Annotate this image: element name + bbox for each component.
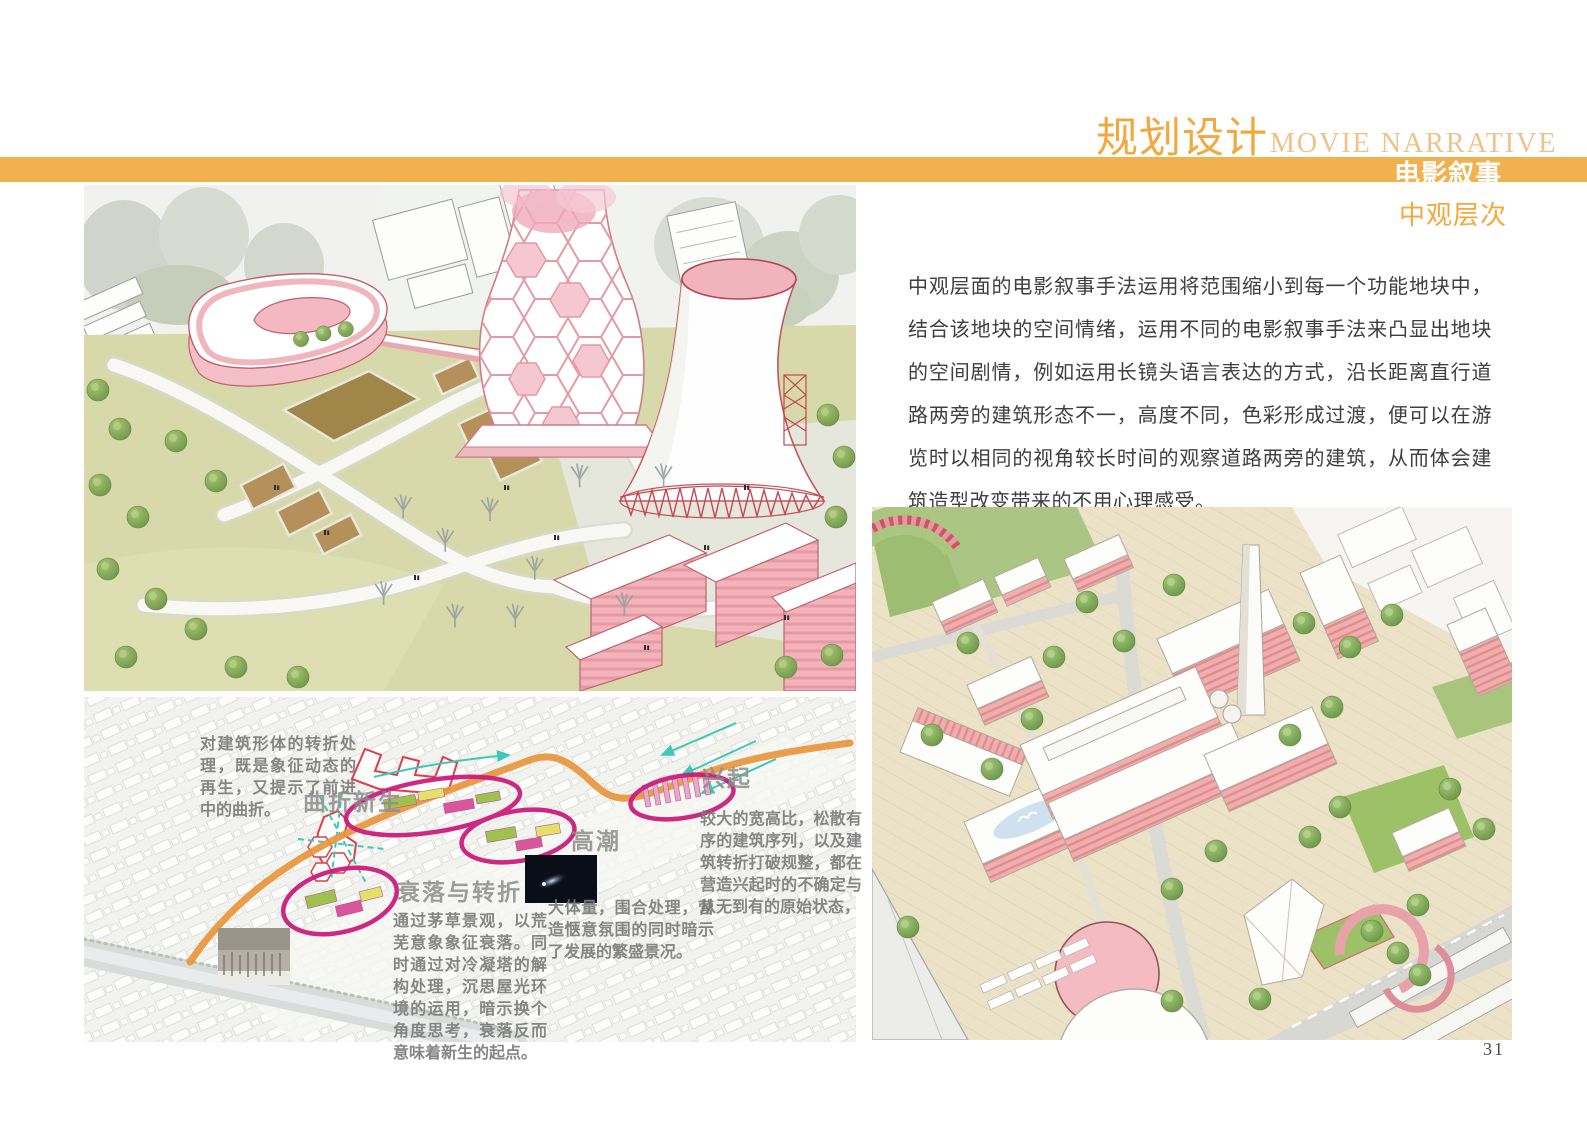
portfolio-page: 规划设计MOVIE NARRATIVE 电影叙事 中观层次 中观层面的电影叙事手… bbox=[0, 0, 1587, 1122]
section-subtitle: 中观层次 bbox=[1399, 195, 1507, 232]
stage-label-rebirth: 曲折新生 bbox=[303, 783, 403, 817]
hero-render bbox=[84, 185, 856, 691]
movie-still-thumbnail bbox=[525, 855, 597, 903]
reeds-photo bbox=[218, 928, 290, 985]
intro-paragraph: 中观层面的电影叙事手法运用将范围缩小到每一个功能地块中，结合该地块的空间情绪，运… bbox=[908, 266, 1492, 524]
stage-label-decline: 衰落与转折 bbox=[397, 873, 522, 907]
section-banner-label: 电影叙事 bbox=[1394, 154, 1502, 191]
hero-render-svg bbox=[84, 185, 856, 691]
page-title-chinese: 规划设计 bbox=[1096, 104, 1268, 165]
note-climax: 大体量，围合处理，营造惬意氛围的同时暗示了发展的繁盛景况。 bbox=[548, 898, 714, 964]
note-rise: 较大的宽高比，松散有序的建筑序列，以及建筑转折打破规整，都在营造兴起时的不确定与… bbox=[700, 809, 862, 919]
site-render bbox=[872, 507, 1512, 1040]
stage-label-rise: 兴起 bbox=[702, 759, 752, 793]
stage-label-climax: 高潮 bbox=[571, 822, 621, 856]
note-decline: 通过茅草景观，以荒芜意象象征衰落。同时通过对冷凝塔的解构处理，沉思屋光环境的运用… bbox=[393, 911, 547, 1065]
page-number: 31 bbox=[1483, 1039, 1505, 1060]
site-render-svg bbox=[872, 507, 1512, 1040]
narrative-diagram: 对建筑形体的转折处理，既是象征动态的再生，又提示了前进中的曲折。 曲折新生 兴起… bbox=[84, 697, 856, 1042]
section-banner: 电影叙事 bbox=[0, 157, 1587, 182]
